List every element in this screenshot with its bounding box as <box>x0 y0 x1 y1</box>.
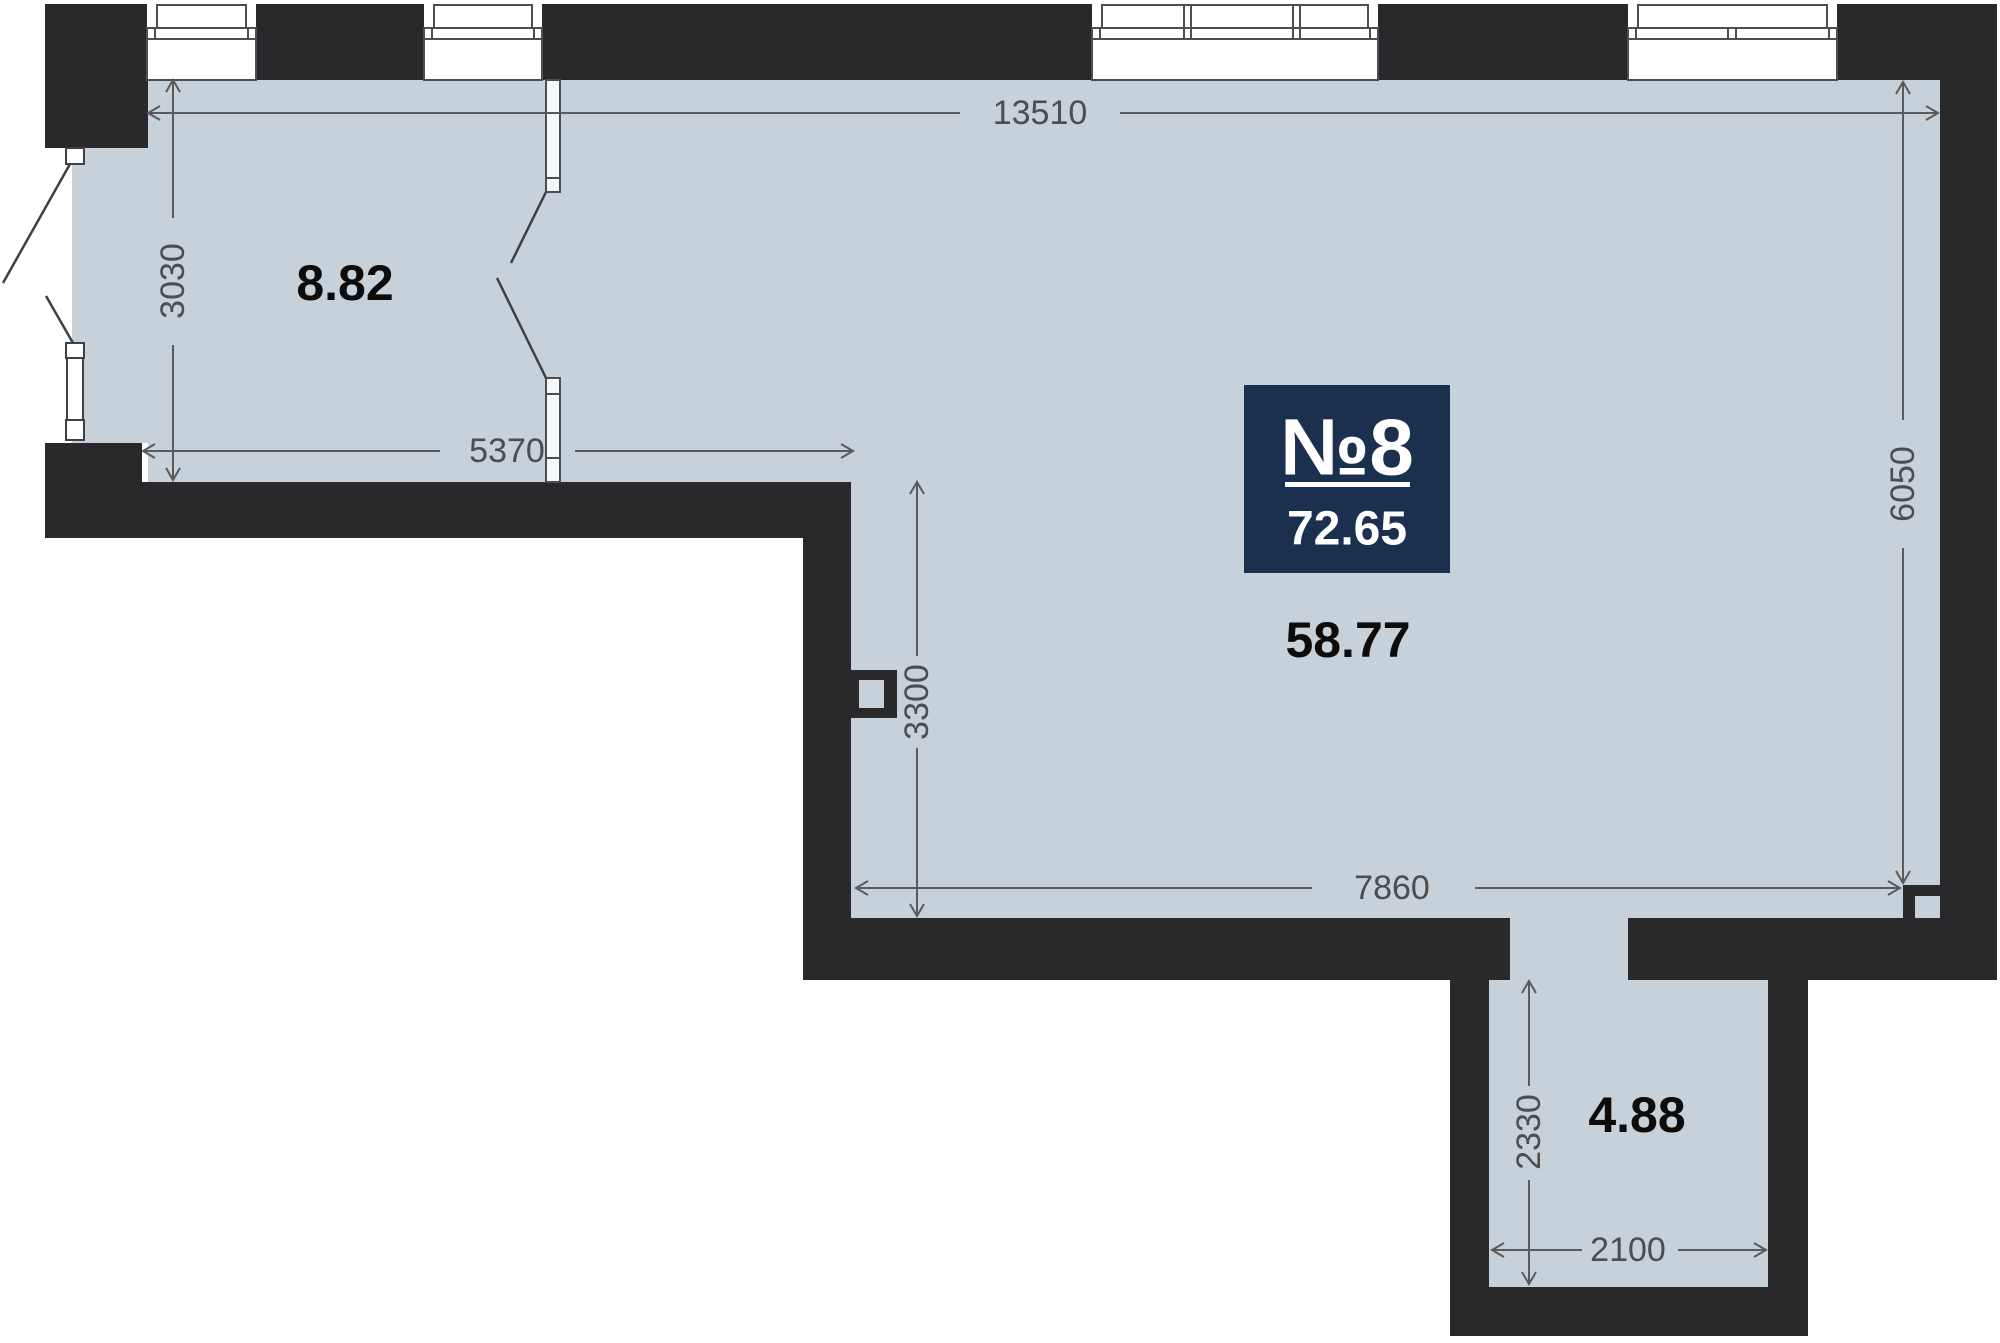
window-3 <box>1092 4 1378 80</box>
door-frame-bottom <box>66 420 84 440</box>
window-1 <box>147 4 256 80</box>
dim-room1-height: 3030 <box>154 243 192 319</box>
window-4 <box>1628 4 1837 80</box>
dim-main-left-height: 3300 <box>898 664 936 740</box>
wall-room1-bottom <box>45 482 851 538</box>
wall-bottom-right-segment <box>1628 918 1997 980</box>
wall-bottom-left-segment <box>803 918 1510 980</box>
badge-divider <box>1285 482 1410 487</box>
floorplan-drawing: 13510 3030 5370 3300 6050 7860 2330 2100… <box>0 0 2000 1343</box>
floorplan-page: 13510 3030 5370 3300 6050 7860 2330 2100… <box>0 0 2000 1343</box>
unit-number: №8 <box>1280 403 1414 492</box>
dim-hall-width: 2100 <box>1590 1231 1666 1269</box>
balcony-doors <box>3 148 84 440</box>
dim-top-width: 13510 <box>993 94 1088 132</box>
room-area-58-77: 58.77 <box>1285 612 1410 668</box>
door-swing-upper <box>3 164 70 283</box>
dim-right-height: 6050 <box>1884 446 1922 522</box>
room-area-8-82: 8.82 <box>296 255 393 311</box>
unit-badge: №8 72.65 <box>1244 385 1450 573</box>
door-frame-mid <box>66 343 84 358</box>
dim-hall-height: 2330 <box>1510 1094 1548 1170</box>
window-2 <box>424 4 542 80</box>
dim-room1-width: 5370 <box>469 432 545 470</box>
partition-upper <box>546 80 560 192</box>
wall-hall-left <box>1450 978 1489 1336</box>
wall-hall-bottom <box>1450 1287 1808 1336</box>
wall-block-top-left <box>45 4 148 148</box>
floor-corridor <box>1510 918 1628 980</box>
wall-hall-right <box>1768 978 1808 1336</box>
unit-total-area: 72.65 <box>1287 503 1407 556</box>
door-swing-lower <box>46 296 73 343</box>
room-area-4-88: 4.88 <box>1588 1087 1685 1143</box>
wall-block-bottom-left <box>45 443 142 538</box>
door-leaf <box>67 358 83 420</box>
pilaster-duct-opening <box>859 680 884 708</box>
door-frame-top <box>66 148 84 164</box>
corner-shaft-opening <box>1915 896 1940 918</box>
wall-vertical-mid <box>803 482 851 980</box>
wall-right <box>1940 80 1997 980</box>
dim-main-bottom-width: 7860 <box>1354 869 1430 907</box>
